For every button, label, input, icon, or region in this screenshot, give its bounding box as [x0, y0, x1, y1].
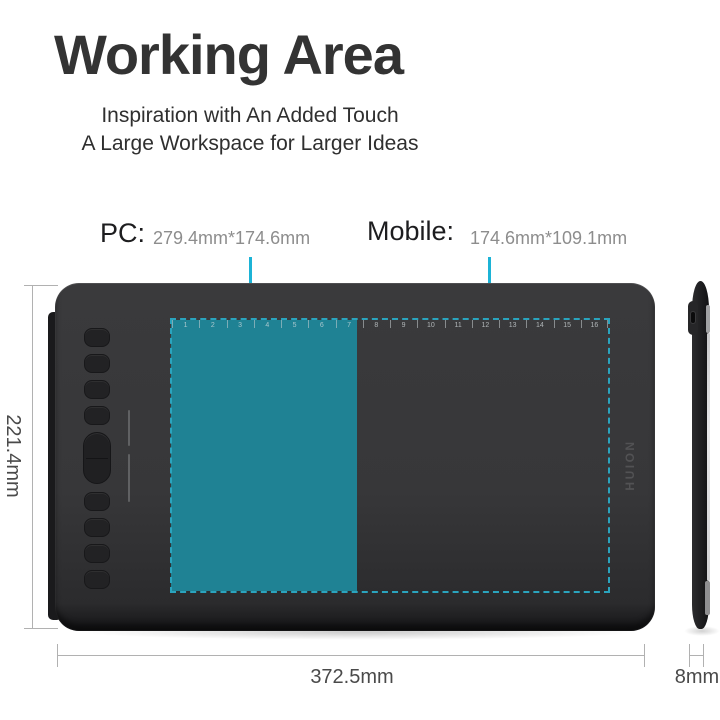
express-key-3 — [84, 380, 110, 399]
ruler-number: 15 — [554, 320, 581, 332]
height-dimension-line — [32, 285, 33, 628]
ruler-number: 9 — [390, 320, 417, 332]
thickness-dimension-label: 8mm — [674, 666, 720, 689]
ruler-number: 12 — [472, 320, 499, 332]
ruler-number: 4 — [254, 320, 281, 332]
ruler-number: 11 — [445, 320, 472, 332]
ruler-number: 1 — [172, 320, 199, 332]
subtitle: Inspiration with An Added Touch A Large … — [0, 102, 500, 158]
height-dimension-tick-top — [24, 285, 58, 286]
express-key-1 — [84, 328, 110, 347]
ruler-number: 2 — [199, 320, 226, 332]
thickness-dimension-tick-left — [689, 644, 690, 667]
height-dimension-tick-bottom — [24, 628, 58, 629]
height-dimension-label: 221.4mm — [4, 401, 24, 511]
express-key-4 — [84, 406, 110, 425]
ruler-number: 10 — [417, 320, 444, 332]
ruler-number: 6 — [308, 320, 335, 332]
side-profile-edge-top — [706, 305, 710, 333]
page-title: Working Area — [54, 22, 403, 87]
ruler-number: 16 — [581, 320, 608, 332]
express-key-5 — [84, 492, 110, 511]
ruler-number: 7 — [336, 320, 363, 332]
mobile-callout-label: Mobile: — [367, 216, 454, 247]
express-key-2 — [84, 354, 110, 373]
thickness-dimension-line — [689, 655, 704, 656]
ruler-number: 5 — [281, 320, 308, 332]
side-profile-shadow — [684, 626, 720, 636]
express-key-8 — [84, 570, 110, 589]
express-key-7 — [84, 544, 110, 563]
width-dimension-label: 372.5mm — [252, 666, 452, 689]
width-dimension-tick-right — [644, 644, 645, 667]
width-dimension-line — [57, 655, 645, 656]
width-dimension-tick-left — [57, 644, 58, 667]
side-profile-edge-highlight — [707, 333, 710, 581]
subtitle-line-2: A Large Workspace for Larger Ideas — [0, 130, 500, 158]
tablet-side-profile — [686, 281, 716, 631]
subtitle-line-1: Inspiration with An Added Touch — [0, 102, 500, 130]
panel-divider-top — [128, 410, 130, 446]
ruler-number: 13 — [499, 320, 526, 332]
panel-divider-bottom — [128, 454, 130, 502]
express-key-6 — [84, 518, 110, 537]
express-key-pill — [83, 432, 111, 484]
huion-brand-logo: HUION — [623, 430, 643, 500]
infographic-canvas: Working Area Inspiration with An Added T… — [0, 0, 720, 720]
working-area-dashed-border — [170, 318, 610, 593]
working-area-ruler: 12345678910111213141516 — [172, 320, 608, 332]
side-profile-edge-bottom — [705, 581, 710, 615]
ruler-number: 8 — [363, 320, 390, 332]
mobile-callout-size: 174.6mm*109.1mm — [470, 228, 627, 249]
usb-port-icon — [690, 311, 696, 324]
thickness-dimension-tick-right — [703, 644, 704, 667]
pc-callout-label: PC: — [100, 218, 145, 249]
ruler-number: 14 — [526, 320, 553, 332]
ruler-number: 3 — [227, 320, 254, 332]
pc-callout-size: 279.4mm*174.6mm — [153, 228, 310, 249]
